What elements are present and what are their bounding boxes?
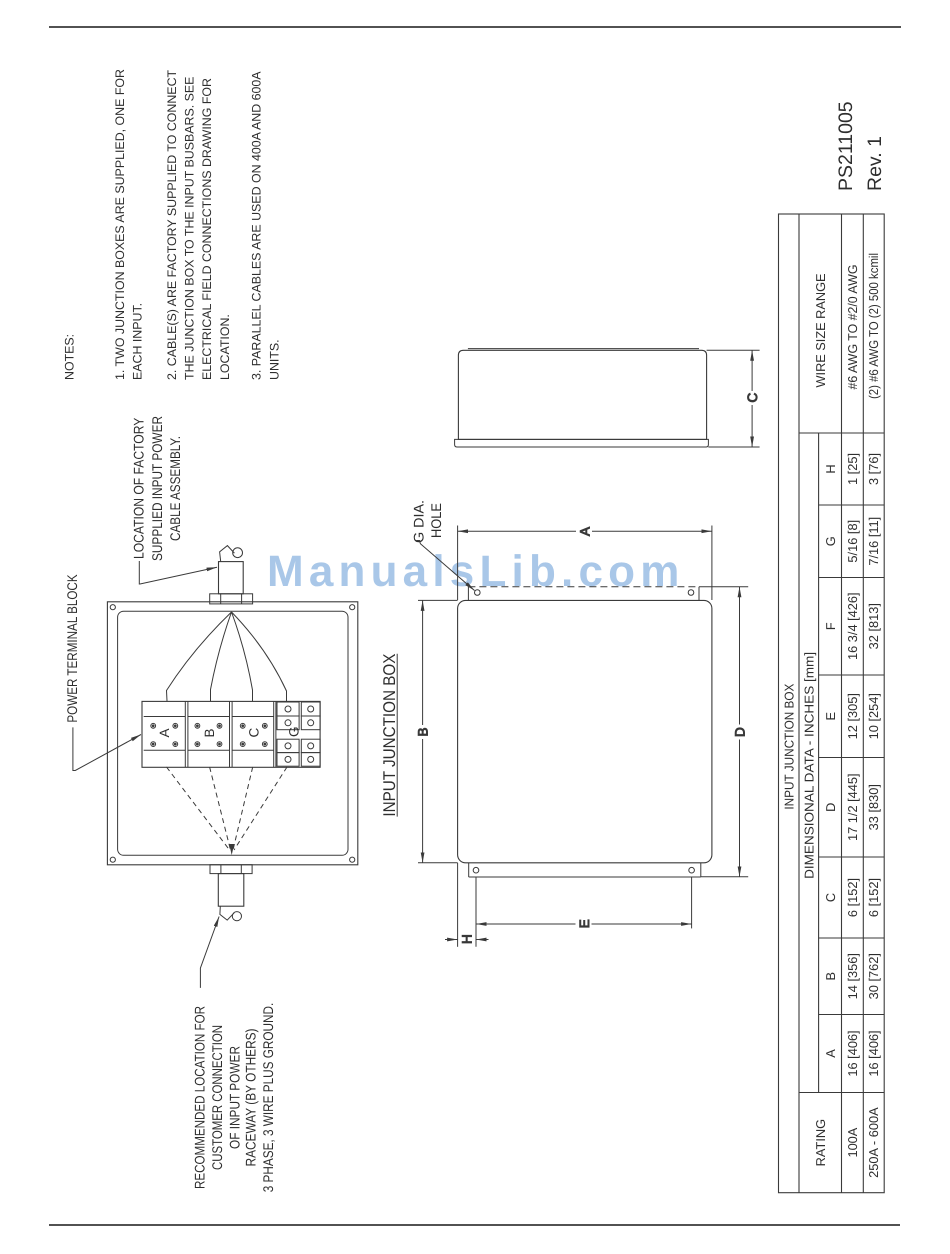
svg-text:12 [305]: 12 [305] xyxy=(845,693,860,739)
svg-text:CUSTOMER CONNECTION: CUSTOMER CONNECTION xyxy=(209,1025,225,1170)
svg-text:250A - 600A: 250A - 600A xyxy=(866,1107,881,1178)
svg-text:G DIA.: G DIA. xyxy=(410,500,426,543)
svg-text:POWER TERMINAL BLOCK: POWER TERMINAL BLOCK xyxy=(64,574,80,723)
svg-text:17 1/2 [445]: 17 1/2 [445] xyxy=(845,773,860,841)
svg-text:INPUT JUNCTION BOX: INPUT JUNCTION BOX xyxy=(782,683,797,809)
svg-text:G: G xyxy=(823,536,838,546)
svg-text:INPUT JUNCTION BOX: INPUT JUNCTION BOX xyxy=(380,654,399,817)
svg-text:3 PHASE, 3 WIRE PLUS GROUND.: 3 PHASE, 3 WIRE PLUS GROUND. xyxy=(260,1003,276,1193)
svg-text:H: H xyxy=(823,464,838,473)
svg-text:3. PARALLEL CABLES ARE USED ON: 3. PARALLEL CABLES ARE USED ON 400A AND … xyxy=(250,71,264,380)
svg-text:6 [152]: 6 [152] xyxy=(866,878,881,917)
svg-text:WIRE SIZE RANGE: WIRE SIZE RANGE xyxy=(813,274,828,388)
svg-text:UNITS.: UNITS. xyxy=(267,339,281,380)
svg-text:E: E xyxy=(577,919,592,928)
svg-text:30 [762]: 30 [762] xyxy=(866,953,881,999)
svg-text:PS211005: PS211005 xyxy=(835,101,857,191)
svg-text:#6 AWG TO #2/0 AWG: #6 AWG TO #2/0 AWG xyxy=(845,265,860,390)
svg-text:1. TWO JUNCTION BOXES ARE SUPP: 1. TWO JUNCTION BOXES ARE SUPPLIED, ONE … xyxy=(113,69,127,380)
svg-text:A: A xyxy=(823,1049,838,1058)
svg-text:6 [152]: 6 [152] xyxy=(845,878,860,917)
svg-text:RECOMMENDED LOCATION FOR: RECOMMENDED LOCATION FOR xyxy=(192,1006,208,1189)
svg-text:B: B xyxy=(823,972,838,981)
svg-text:F: F xyxy=(823,622,838,630)
svg-text:100A: 100A xyxy=(845,1127,860,1157)
svg-text:ManualsLib.com: ManualsLib.com xyxy=(267,547,685,596)
svg-text:A: A xyxy=(578,527,593,536)
svg-text:7/16 [11]: 7/16 [11] xyxy=(866,517,881,566)
svg-text:5/16 [8]: 5/16 [8] xyxy=(845,520,860,563)
svg-text:DIMENSIONAL DATA - INCHES [mm]: DIMENSIONAL DATA - INCHES [mm] xyxy=(802,652,817,879)
svg-text:3 [76]: 3 [76] xyxy=(866,453,881,485)
svg-text:1 [25]: 1 [25] xyxy=(845,453,860,485)
svg-text:A: A xyxy=(157,728,172,737)
svg-text:RACEWAY (BY OTHERS): RACEWAY (BY OTHERS) xyxy=(243,1029,259,1167)
svg-text:LOCATION.: LOCATION. xyxy=(218,314,232,380)
svg-text:Rev. 1: Rev. 1 xyxy=(864,136,886,191)
svg-text:32 [813]: 32 [813] xyxy=(866,603,881,649)
svg-text:2. CABLE(S) ARE FACTORY SUPPLI: 2. CABLE(S) ARE FACTORY SUPPLIED TO CONN… xyxy=(165,69,179,380)
svg-text:B: B xyxy=(415,727,430,736)
svg-text:EACH INPUT.: EACH INPUT. xyxy=(131,303,145,380)
svg-text:D: D xyxy=(823,803,838,812)
svg-text:ELECTRICAL FIELD CONNECTIONS D: ELECTRICAL FIELD CONNECTIONS DRAWING FOR xyxy=(200,78,214,380)
svg-text:C: C xyxy=(246,728,261,738)
svg-text:THE JUNCTION BOX TO THE INPUT: THE JUNCTION BOX TO THE INPUT BUSBARS. S… xyxy=(183,77,197,380)
svg-text:LOCATION OF FACTORY: LOCATION OF FACTORY xyxy=(131,417,147,559)
svg-text:CABLE ASSEMBLY.: CABLE ASSEMBLY. xyxy=(167,436,183,541)
svg-text:H: H xyxy=(459,934,474,944)
svg-text:10 [254]: 10 [254] xyxy=(866,693,881,739)
svg-text:G: G xyxy=(287,726,302,737)
svg-text:16 [406]: 16 [406] xyxy=(845,1030,860,1076)
svg-text:HOLE: HOLE xyxy=(428,503,444,538)
svg-text:NOTES:: NOTES: xyxy=(63,334,77,380)
svg-text:C: C xyxy=(745,393,760,403)
svg-text:(2) #6 AWG TO (2) 500 kcmil: (2) #6 AWG TO (2) 500 kcmil xyxy=(866,253,881,399)
svg-text:OF INPUT POWER: OF INPUT POWER xyxy=(227,1046,243,1149)
svg-text:D: D xyxy=(732,727,747,737)
svg-text:C: C xyxy=(823,893,838,902)
svg-text:16 3/4 [426]: 16 3/4 [426] xyxy=(845,592,860,660)
svg-text:16 [406]: 16 [406] xyxy=(866,1030,881,1076)
svg-text:B: B xyxy=(202,728,217,737)
svg-text:33 [830]: 33 [830] xyxy=(866,784,881,830)
svg-text:14 [356]: 14 [356] xyxy=(845,953,860,999)
svg-text:SUPPLIED INPUT POWER: SUPPLIED INPUT POWER xyxy=(149,416,165,561)
svg-text:E: E xyxy=(823,712,838,721)
svg-text:RATING: RATING xyxy=(813,1119,828,1166)
